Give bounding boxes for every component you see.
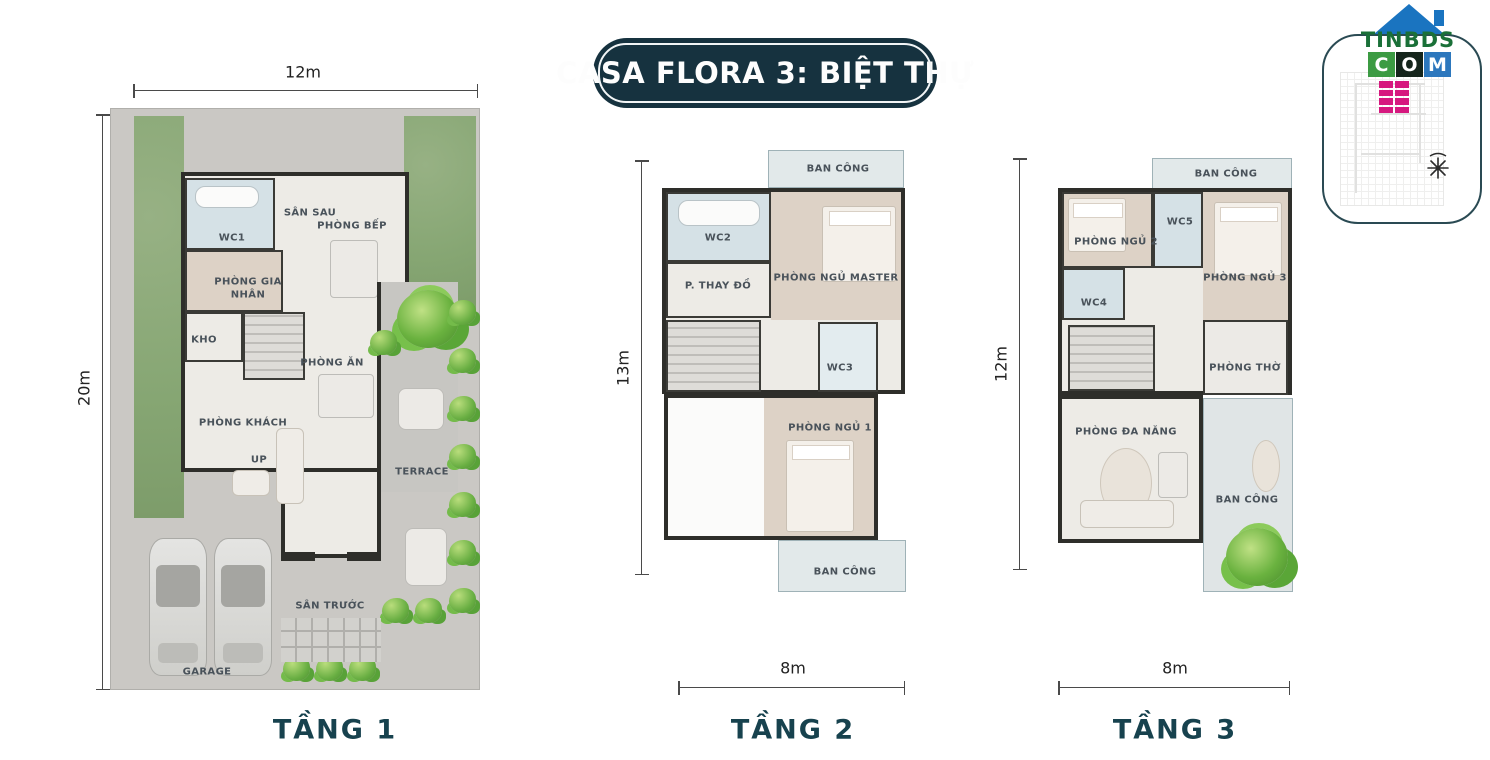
room-label-master: PHÒNG NGỦ MASTER (773, 273, 898, 284)
room-label-san-truoc: SÂN TRƯỚC (295, 601, 364, 612)
room-label-ngu2: PHÒNG NGỦ 2 (1074, 237, 1158, 248)
logo-letter-m: M (1424, 52, 1451, 77)
floor1-height-dimension: 20m (75, 370, 94, 406)
room-label-an: PHÒNG ĂN (300, 358, 364, 369)
floor3-stairs (1068, 325, 1155, 391)
plant-bush (449, 300, 476, 325)
front-wall-left (281, 552, 315, 561)
room-label-terrace: TERRACE (395, 467, 449, 478)
balcony-tree (1226, 528, 1288, 586)
plant-bush (415, 598, 442, 623)
kitchen-island-icon (330, 240, 378, 298)
compass-icon (1424, 150, 1452, 180)
page-title: CASA FLORA 3: BIỆT THỰ (593, 38, 937, 108)
floorplan-poster: CASA FLORA 3: BIỆT THỰ TINBDS C O M 12m … (0, 0, 1490, 760)
room-label-thay-do: P. THAY ĐỒ (685, 281, 751, 292)
room-label-f2-balcony-top: BAN CÔNG (807, 164, 870, 175)
side-table-icon (1158, 452, 1188, 498)
bed-icon (786, 440, 854, 532)
terrace-tree (397, 290, 459, 348)
room-label-f3-balcony-bottom: BAN CÔNG (1216, 495, 1279, 506)
room-label-wc5: WC5 (1167, 217, 1194, 228)
plant-bush (382, 598, 409, 623)
room-label-wc2: WC2 (705, 233, 732, 244)
floor3-height-dimension-line (1019, 158, 1020, 570)
room-label-ngu1: PHÒNG NGỦ 1 (788, 423, 872, 434)
floor2-room-wc2 (666, 192, 771, 262)
room-label-ngu3: PHÒNG NGỦ 3 (1203, 273, 1287, 284)
sofa-icon (276, 428, 304, 504)
terrace-table-icon (398, 388, 444, 430)
floor2-title: TẦNG 2 (731, 715, 855, 746)
floor1-height-dimension-line (102, 114, 103, 690)
room-label-san-sau: SÂN SAU (284, 208, 336, 219)
room-label-garage: GARAGE (183, 667, 232, 678)
floor2-width-dimension-line (678, 687, 905, 688)
floor1-stairs (243, 312, 305, 380)
room-label-da-nang: PHÒNG ĐA NĂNG (1075, 427, 1177, 438)
plant-bush (449, 444, 476, 469)
room-label-up: UP (251, 455, 267, 466)
dining-table-icon (318, 374, 374, 418)
floor3-width-dimension: 8m (1162, 659, 1188, 678)
logo-letter-c: C (1368, 52, 1395, 77)
armchair-icon (232, 470, 270, 496)
room-label-f2-balcony-bottom: BAN CÔNG (814, 567, 877, 578)
logo-tld-boxes: C O M (1368, 52, 1451, 77)
floor2-height-dimension-line (641, 160, 642, 575)
plant-bush (370, 330, 397, 355)
room-label-wc3: WC3 (827, 363, 854, 374)
front-wall-right (347, 552, 381, 561)
sofa-icon (1080, 500, 1174, 528)
title-banner: CASA FLORA 3: BIỆT THỰ (593, 38, 937, 108)
floor2-room-wc3 (818, 322, 878, 392)
floor2-height-dimension: 13m (614, 350, 633, 386)
plant-bush (449, 588, 476, 613)
room-label-wc4: WC4 (1081, 298, 1108, 309)
room-label-f3-balcony-top: BAN CÔNG (1195, 169, 1258, 180)
plant-bush (449, 540, 476, 565)
logo-letter-o: O (1396, 52, 1423, 77)
car-icon (214, 538, 272, 676)
floor3-room-wc4 (1062, 268, 1125, 320)
room-label-khach: PHÒNG KHÁCH (199, 418, 287, 429)
plant-bush (449, 348, 476, 373)
floor1-paving (281, 618, 381, 662)
floor3-width-dimension-line (1058, 687, 1290, 688)
floor3-room-wc5 (1153, 192, 1203, 268)
bed-icon (822, 206, 896, 282)
floor2-stairs (666, 320, 761, 392)
bed-icon (1214, 202, 1282, 276)
floor1-grass-left (134, 116, 184, 518)
floor1-width-dimension-line (133, 90, 478, 91)
logo-brand-text: TINBDS (1361, 28, 1455, 52)
car-icon (149, 538, 207, 676)
floor3-title: TẦNG 3 (1113, 715, 1237, 746)
plant-bush (449, 396, 476, 421)
planter-icon (1252, 440, 1280, 492)
floor3-height-dimension: 12m (992, 346, 1011, 382)
room-label-gia-nhan: PHÒNG GIA NHÂN (211, 277, 285, 302)
plant-bush (449, 492, 476, 517)
floor2-width-dimension: 8m (780, 659, 806, 678)
floor1-title: TẦNG 1 (273, 715, 397, 746)
garden-table-icon (405, 528, 447, 586)
logo-map-highlight-blocks (1379, 81, 1409, 113)
room-label-tho: PHÒNG THỜ (1209, 363, 1281, 374)
floor3-room-tho (1203, 320, 1288, 395)
floor1-width-dimension: 12m (285, 63, 321, 82)
room-label-wc1: WC1 (219, 233, 246, 244)
house-chimney-icon (1434, 10, 1444, 26)
room-label-bep: PHÒNG BẾP (317, 221, 387, 232)
room-label-kho: KHO (191, 335, 217, 346)
